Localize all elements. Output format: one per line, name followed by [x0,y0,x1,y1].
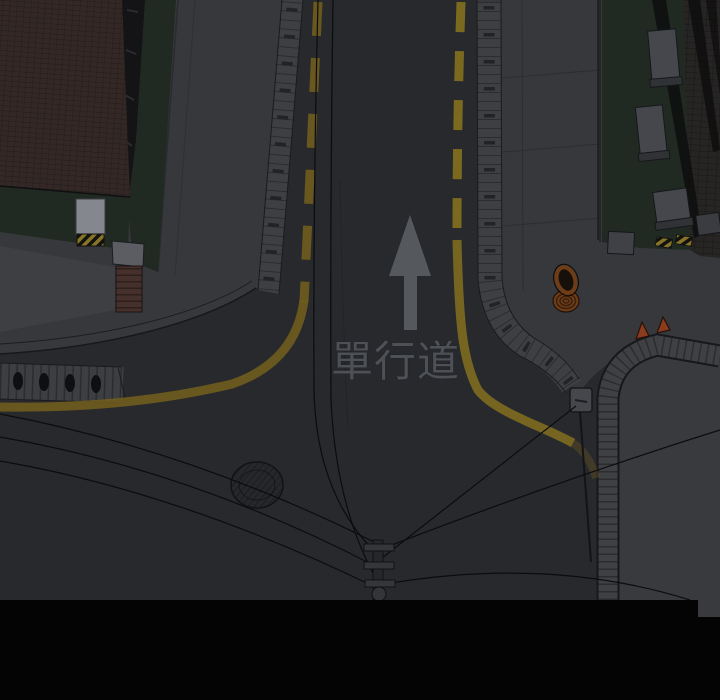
gate-pillar-light [76,199,105,235]
utility-box [607,231,634,254]
bollard-icon [13,372,23,390]
ac-unit [696,212,720,235]
pole-crossarm [364,562,394,569]
bollard-icon [39,373,49,391]
building-roof-texture [0,0,130,197]
panel-black-band [0,600,720,700]
street-scene-panel: 單行道 [0,0,720,700]
manhole-cover [231,462,283,508]
one-way-road-marking-text: 單行道 [331,339,471,385]
bollard-icon [65,374,75,392]
bollard-icon [91,375,101,393]
pole-transformer [372,587,386,601]
brick-pillar-cap [112,241,144,267]
pole-crossarm [364,544,394,551]
ac-unit [651,188,694,231]
hazard-stripe-block [77,234,104,246]
pole-crossarm [365,580,395,587]
